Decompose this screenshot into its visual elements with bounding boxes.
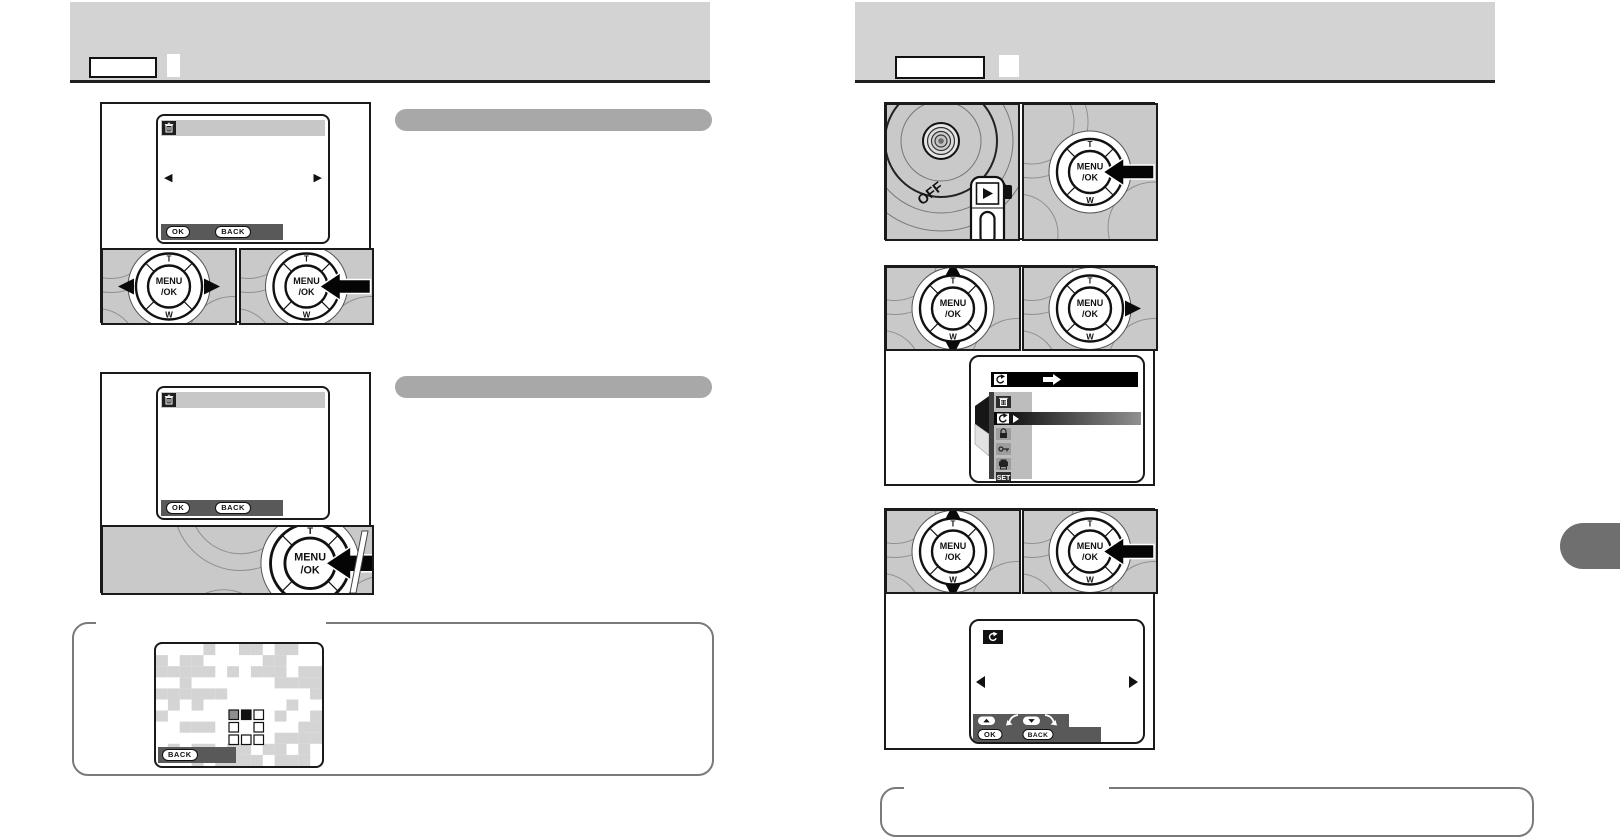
ok-back-bar: OK BACK: [161, 500, 283, 516]
back-button-label: BACK: [215, 502, 251, 514]
left-header-square: [167, 54, 180, 77]
svg-text:W: W: [949, 333, 957, 342]
menu-item-protect-icon: [996, 428, 1011, 440]
svg-text:W: W: [165, 311, 173, 320]
dpad-graphic: MENU/OKTW: [1024, 268, 1156, 349]
svg-text:MENU: MENU: [293, 276, 320, 286]
erase-screen-1: ◀ ▶ OK BACK: [156, 114, 330, 244]
figure-playback-mode: OFF MENU/OKTW: [884, 102, 1155, 240]
menu-title-bar: [991, 372, 1138, 387]
image-rotate-title-icon: [983, 630, 1003, 644]
svg-text:MENU: MENU: [1077, 162, 1104, 172]
left-header-label-box: [89, 57, 157, 78]
dpad-press-menu-ok: MENU/OKTW: [1022, 509, 1158, 594]
figure-image-rotate: MENU/OKTW MENU/OKTW OKBACK: [884, 508, 1155, 750]
mode-dial-panel: OFF: [885, 103, 1020, 241]
back-button-label: BACK: [162, 749, 198, 761]
svg-text:MENU: MENU: [1077, 298, 1104, 308]
frame-left-arrow-icon: ◀: [164, 173, 172, 184]
svg-text:/OK: /OK: [945, 552, 962, 562]
dpad-graphic: MENU/OKTW: [103, 527, 372, 593]
note-box-right: [880, 787, 1534, 837]
svg-text:W: W: [1086, 196, 1094, 205]
dpad-graphic: MENU/OKTW: [1024, 511, 1156, 592]
menu-item-image-rotate-icon: [997, 413, 1009, 423]
menu-item-erase-icon: [996, 396, 1011, 408]
svg-text:/OK: /OK: [1082, 552, 1099, 562]
dpad-graphic: MENU/OKTW: [241, 250, 372, 323]
dpad-right: MENU/OKTW: [1022, 266, 1158, 351]
svg-text:T: T: [1088, 520, 1093, 529]
frame-right-arrow-icon: [1129, 676, 1138, 688]
svg-text:BACK: BACK: [1028, 732, 1048, 739]
left-header-band: [70, 2, 710, 83]
svg-text:/OK: /OK: [161, 287, 178, 297]
dpad-up-down: MENU/OKTW: [885, 266, 1021, 351]
back-bar: BACK: [158, 747, 236, 763]
svg-text:W: W: [1086, 576, 1094, 585]
dpad-graphic: MENU/OKTW: [103, 250, 235, 323]
section-heading-bar-1: [395, 109, 712, 131]
svg-text:T: T: [167, 255, 172, 264]
dpad-graphic: MENU/OKTW: [887, 268, 1019, 349]
mode-switch-knob: [981, 212, 995, 239]
dpad-left-right: MENU/OKTW: [101, 248, 237, 325]
svg-text:W: W: [303, 311, 311, 320]
svg-text:T: T: [951, 520, 956, 529]
note-title-gap: [904, 786, 1109, 791]
svg-text:W: W: [306, 593, 316, 594]
svg-text:MENU: MENU: [940, 298, 967, 308]
ok-back-bar: OK BACK: [161, 224, 283, 240]
figure-playback-menu: MENU/OKTW MENU/OKTW SET: [884, 265, 1155, 486]
svg-text:MENU: MENU: [1077, 541, 1104, 551]
menu-item-set-up-icon: SET: [996, 472, 1011, 481]
press-right-indicator-icon: [1125, 301, 1141, 317]
ok-button-label: OK: [166, 226, 190, 238]
erase-title-bar: [161, 392, 325, 408]
svg-text:/OK: /OK: [1082, 173, 1099, 183]
ok-button-label: OK: [166, 502, 190, 514]
right-header-band: [855, 2, 1495, 83]
figure-erase-frame-step2: OK BACK MENU/OKTW: [100, 372, 371, 593]
svg-text:OK: OK: [984, 730, 996, 739]
multi-frame-screen: BACK: [154, 642, 324, 768]
svg-text:T: T: [951, 277, 956, 286]
svg-text:/OK: /OK: [945, 309, 962, 319]
svg-text:T: T: [304, 255, 309, 264]
playback-menu-screen: SET: [969, 355, 1145, 483]
trash-icon: [162, 393, 176, 407]
svg-text:SET: SET: [997, 475, 1011, 481]
svg-text:T: T: [307, 527, 313, 537]
trash-icon: [162, 121, 176, 135]
image-rotate-graphic: OKBACK: [971, 621, 1143, 742]
mode-dial-graphic: OFF: [887, 105, 1018, 239]
menu-item-print-icon: [996, 458, 1011, 470]
playback-icon: [977, 183, 999, 204]
frame-left-arrow-icon: [976, 676, 985, 688]
dpad-up-down: MENU/OKTW: [885, 509, 1021, 594]
frame-right-arrow-icon: ▶: [314, 173, 322, 184]
right-header-square: [999, 55, 1019, 77]
svg-text:/OK: /OK: [298, 287, 315, 297]
dpad-graphic: MENU/OKTW: [887, 511, 1019, 592]
svg-text:W: W: [949, 576, 957, 585]
image-rotate-screen: OKBACK: [969, 619, 1145, 744]
manual-page: ◀ ▶ OK BACK MENU/OKTW MENU/OKTW OK BACK …: [0, 0, 1620, 840]
note-box-left: BACK: [72, 622, 714, 776]
svg-text:T: T: [1088, 277, 1093, 286]
note-title-gap: [96, 621, 326, 626]
back-button-label: BACK: [215, 226, 251, 238]
right-header-label-box: [895, 56, 985, 79]
section-heading-bar-2: [395, 376, 712, 398]
erase-screen-2: OK BACK: [156, 386, 330, 520]
press-right-indicator-icon: [204, 279, 220, 295]
svg-text:MENU: MENU: [940, 541, 967, 551]
menu-item-key-icon: [996, 443, 1011, 455]
erase-title-bar: [161, 120, 325, 136]
svg-text:MENU: MENU: [294, 551, 326, 563]
dpad-press-menu-ok: MENU/OKTW: [1022, 103, 1158, 241]
svg-text:/OK: /OK: [1082, 309, 1099, 319]
off-label: OFF: [914, 178, 946, 208]
svg-text:MENU: MENU: [156, 276, 183, 286]
dpad-press-menu-ok-wide: MENU/OKTW: [101, 525, 374, 595]
svg-text:W: W: [1086, 333, 1094, 342]
figure-erase-frame-step1: ◀ ▶ OK BACK MENU/OKTW MENU/OKTW: [100, 102, 371, 323]
playback-menu-graphic: SET: [971, 357, 1143, 481]
dpad-graphic: MENU/OKTW: [1024, 105, 1156, 239]
svg-text:T: T: [1088, 140, 1093, 149]
svg-text:/OK: /OK: [301, 565, 320, 577]
chapter-edge-tab: [1560, 523, 1620, 569]
dpad-press-menu-ok: MENU/OKTW: [239, 248, 374, 325]
